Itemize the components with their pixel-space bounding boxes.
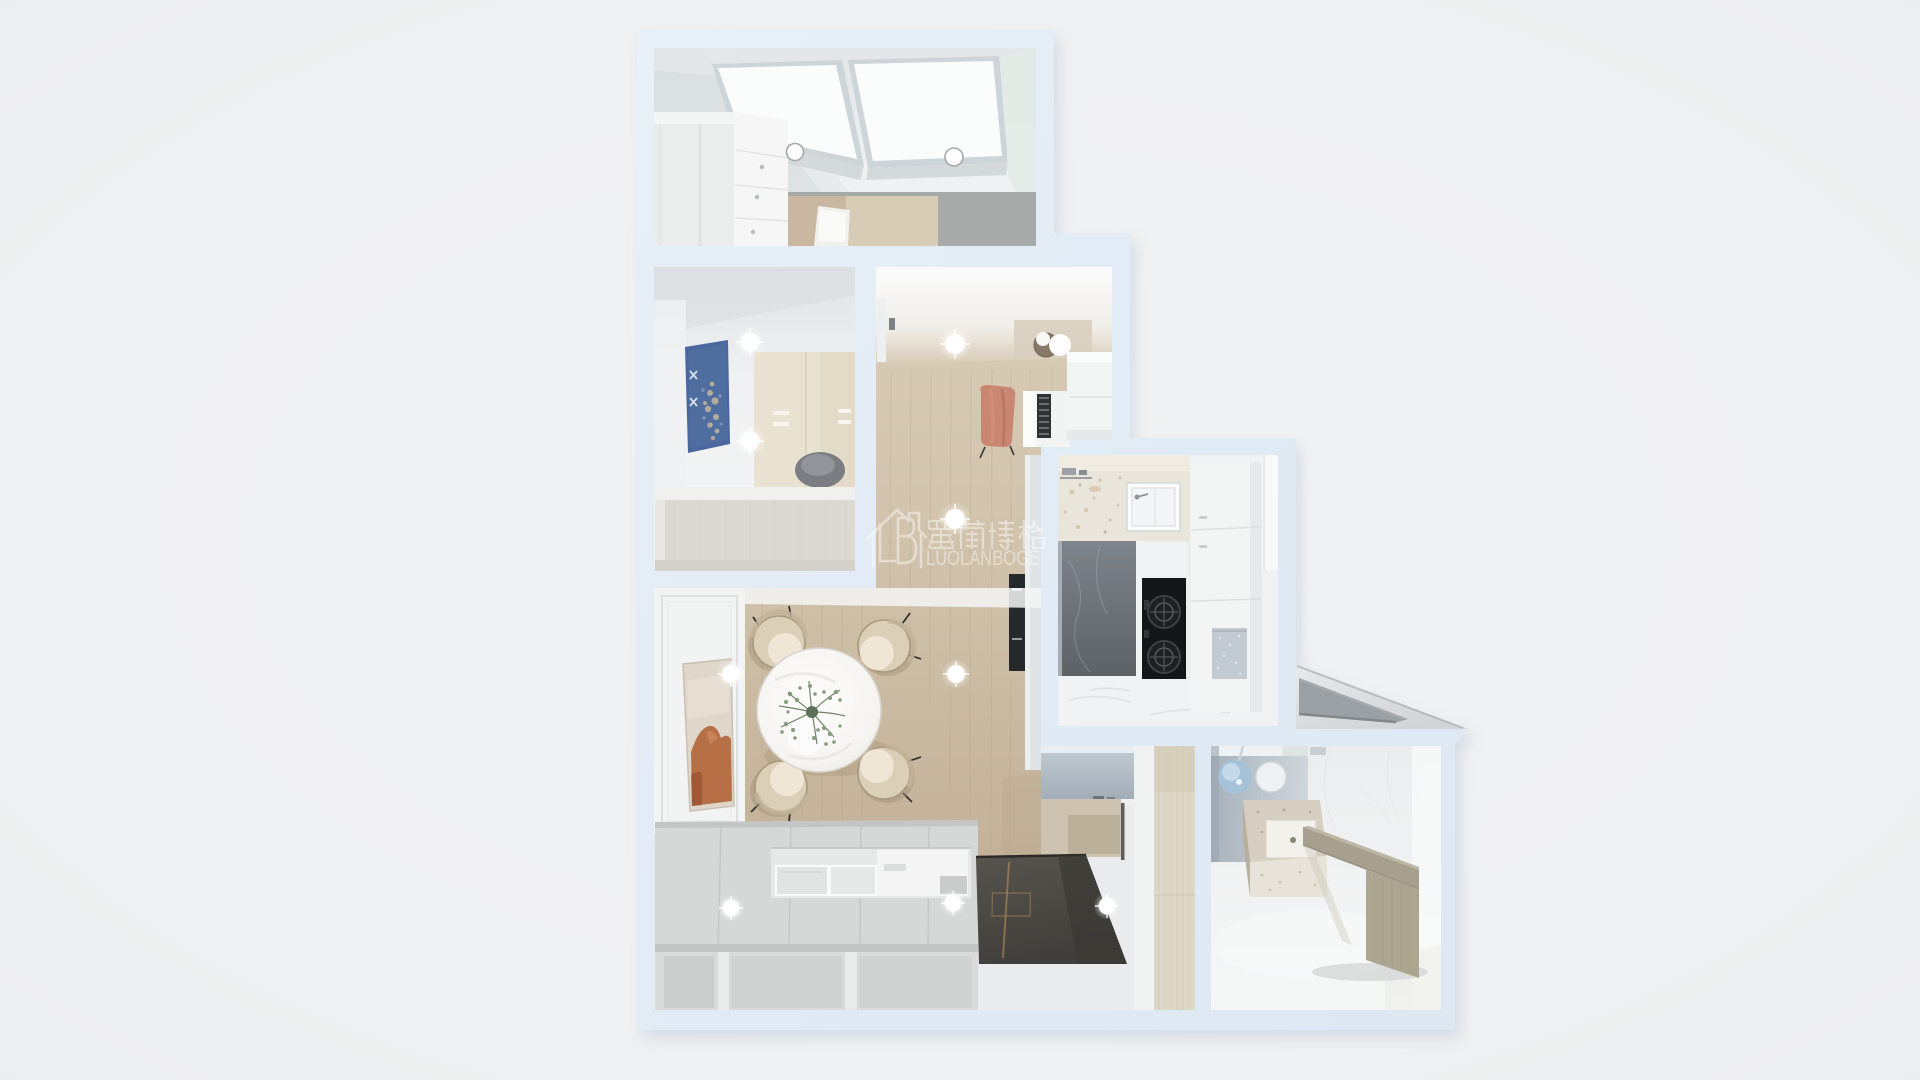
svg-text:LUOLANBOGE: LUOLANBOGE [926, 547, 1040, 570]
